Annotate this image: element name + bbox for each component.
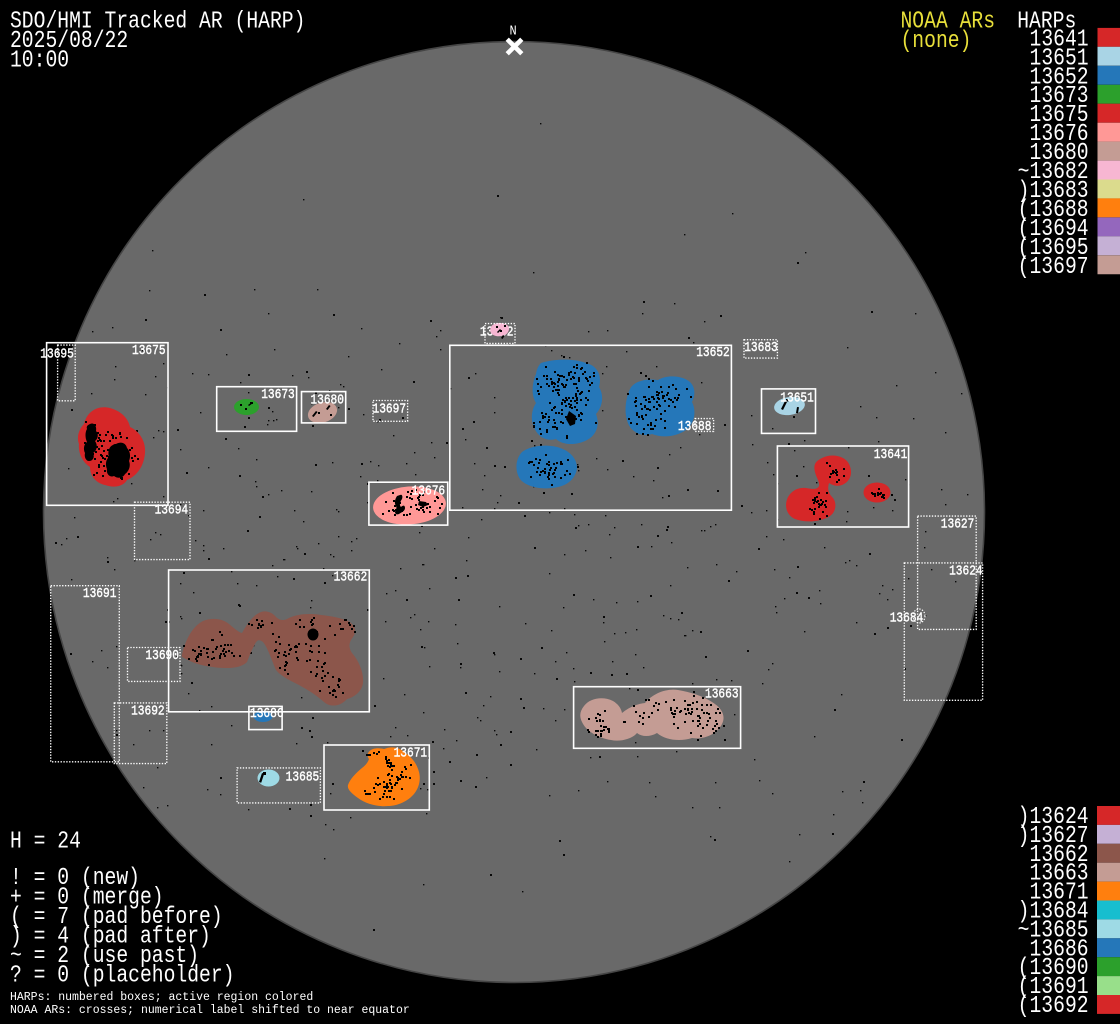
svg-text:13697: 13697 <box>373 400 407 417</box>
svg-text:13684: 13684 <box>890 609 924 626</box>
svg-text:13694: 13694 <box>155 501 189 518</box>
svg-text:13688: 13688 <box>678 418 712 435</box>
svg-text:13671: 13671 <box>394 744 428 761</box>
svg-text:13652: 13652 <box>696 344 730 361</box>
svg-text:13690: 13690 <box>145 647 179 664</box>
svg-text:N: N <box>510 23 517 39</box>
svg-text:13675: 13675 <box>132 342 166 359</box>
svg-text:NOAA ARs: crosses; numerical l: NOAA ARs: crosses; numerical label shift… <box>10 1003 410 1018</box>
svg-text:? = 0 (placeholder): ? = 0 (placeholder) <box>10 962 235 989</box>
svg-text:13663: 13663 <box>705 686 739 703</box>
svg-text:13651: 13651 <box>780 389 814 406</box>
svg-text:13641: 13641 <box>874 446 908 463</box>
svg-text:13676: 13676 <box>412 482 446 499</box>
svg-text:13627: 13627 <box>941 516 975 533</box>
svg-text:(none): (none) <box>901 28 972 55</box>
svg-text:13683: 13683 <box>744 339 778 356</box>
svg-text:13686: 13686 <box>250 705 284 722</box>
svg-text:13624: 13624 <box>949 562 983 579</box>
svg-text:H = 24: H = 24 <box>10 828 81 855</box>
svg-text:13662: 13662 <box>334 568 368 585</box>
svg-text:13685: 13685 <box>286 768 320 785</box>
svg-text:13695: 13695 <box>40 345 74 362</box>
svg-text:13673: 13673 <box>261 386 295 403</box>
svg-text:13691: 13691 <box>83 585 117 602</box>
svg-text:(13692: (13692 <box>1018 992 1089 1019</box>
svg-text:(13697: (13697 <box>1018 253 1089 280</box>
svg-text:10:00: 10:00 <box>10 47 69 74</box>
svg-text:13680: 13680 <box>310 391 344 408</box>
svg-text:13692: 13692 <box>131 703 165 720</box>
